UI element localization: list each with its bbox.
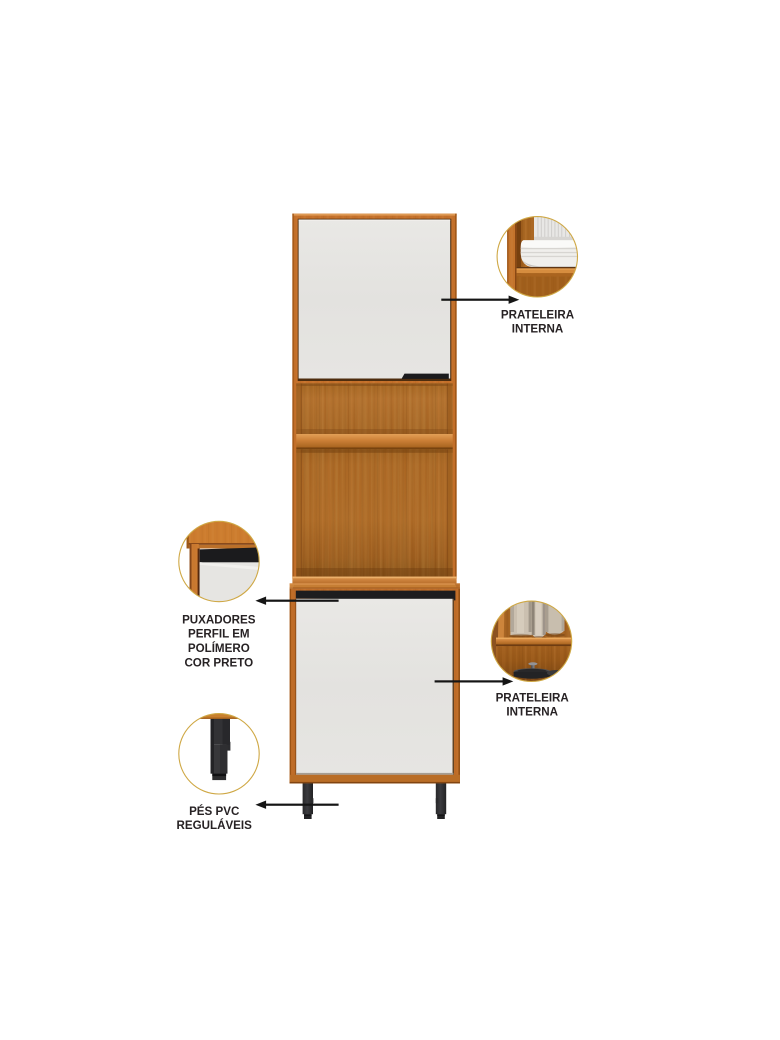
svg-text:INTERNA: INTERNA: [506, 706, 558, 719]
svg-text:REGULÁVEIS: REGULÁVEIS: [177, 819, 253, 832]
svg-text:PRATELEIRA: PRATELEIRA: [501, 308, 575, 321]
svg-text:POLÍMERO: POLÍMERO: [188, 642, 250, 655]
svg-text:INTERNA: INTERNA: [512, 323, 564, 336]
svg-text:PUXADORES: PUXADORES: [182, 613, 256, 626]
svg-text:PÉS PVC: PÉS PVC: [189, 805, 240, 818]
svg-text:COR PRETO: COR PRETO: [184, 656, 253, 669]
svg-text:PRATELEIRA: PRATELEIRA: [496, 692, 570, 705]
svg-text:PERFIL EM: PERFIL EM: [188, 628, 250, 641]
